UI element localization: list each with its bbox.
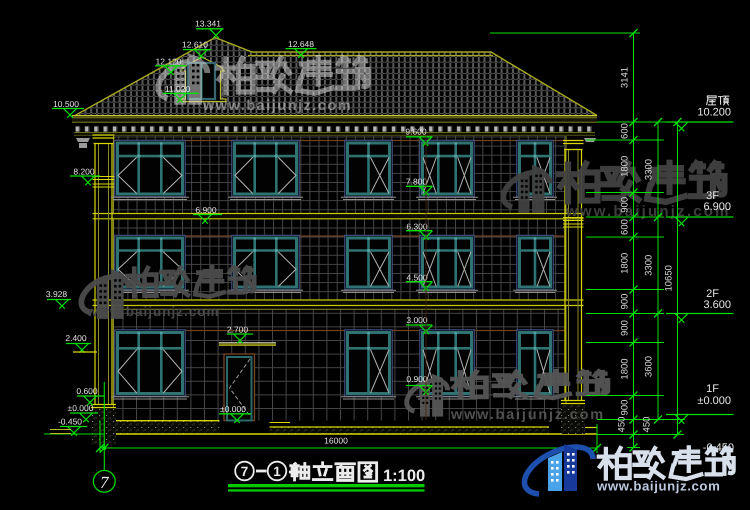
- svg-text:12.120: 12.120: [156, 56, 182, 66]
- svg-text:7.800: 7.800: [406, 176, 428, 186]
- svg-text:www.baijunjz.com: www.baijunjz.com: [202, 98, 352, 114]
- svg-text:12.610: 12.610: [182, 40, 208, 50]
- svg-text:1: 1: [273, 464, 281, 479]
- svg-text:900: 900: [620, 294, 631, 310]
- svg-text:1F: 1F: [706, 383, 719, 395]
- svg-text:3600: 3600: [644, 356, 655, 377]
- svg-text:1:100: 1:100: [383, 467, 425, 485]
- svg-text:12.648: 12.648: [288, 39, 314, 49]
- svg-text:900: 900: [620, 197, 631, 213]
- svg-text:8.200: 8.200: [73, 167, 95, 177]
- svg-text:1800: 1800: [620, 253, 631, 274]
- svg-text:600: 600: [620, 219, 631, 235]
- svg-text:±0.000: ±0.000: [697, 395, 731, 407]
- svg-text:7: 7: [241, 464, 249, 479]
- svg-text:10.500: 10.500: [53, 99, 79, 109]
- svg-text:www.baijunjz.com: www.baijunjz.com: [450, 407, 605, 423]
- svg-text:3.000: 3.000: [406, 315, 428, 325]
- svg-text:450: 450: [642, 417, 653, 433]
- svg-text:16000: 16000: [324, 436, 348, 446]
- svg-text:450: 450: [617, 417, 628, 433]
- svg-text:±0.000: ±0.000: [220, 404, 246, 414]
- svg-text:6.900: 6.900: [703, 201, 731, 213]
- svg-text:3300: 3300: [644, 159, 655, 180]
- svg-text:600: 600: [620, 123, 631, 139]
- svg-text:11.020: 11.020: [165, 84, 191, 94]
- svg-text:±0.000: ±0.000: [68, 403, 94, 413]
- svg-text:900: 900: [620, 400, 631, 416]
- svg-text:13.341: 13.341: [195, 19, 221, 29]
- svg-text:900: 900: [620, 320, 631, 336]
- svg-text:1800: 1800: [620, 358, 631, 379]
- svg-text:6.900: 6.900: [195, 205, 217, 215]
- svg-text:6.300: 6.300: [406, 221, 428, 231]
- svg-text:3.600: 3.600: [703, 299, 731, 311]
- svg-text:7: 7: [100, 473, 110, 492]
- svg-text:0.600: 0.600: [76, 386, 98, 396]
- svg-text:3300: 3300: [644, 255, 655, 276]
- svg-text:2.700: 2.700: [227, 324, 249, 334]
- svg-text:1800: 1800: [620, 156, 631, 177]
- svg-text:-0.450: -0.450: [58, 417, 82, 427]
- svg-text:2.400: 2.400: [65, 333, 87, 343]
- svg-text:3.928: 3.928: [46, 289, 68, 299]
- svg-text:www.baijunjz.com: www.baijunjz.com: [596, 479, 720, 494]
- svg-text:9.600: 9.600: [405, 126, 427, 136]
- svg-text:www.baijunjz.com: www.baijunjz.com: [86, 304, 220, 319]
- svg-text:0.900: 0.900: [406, 374, 428, 384]
- svg-text:3141: 3141: [620, 67, 631, 88]
- svg-text:10.200: 10.200: [697, 107, 731, 119]
- svg-text:10650: 10650: [664, 265, 675, 291]
